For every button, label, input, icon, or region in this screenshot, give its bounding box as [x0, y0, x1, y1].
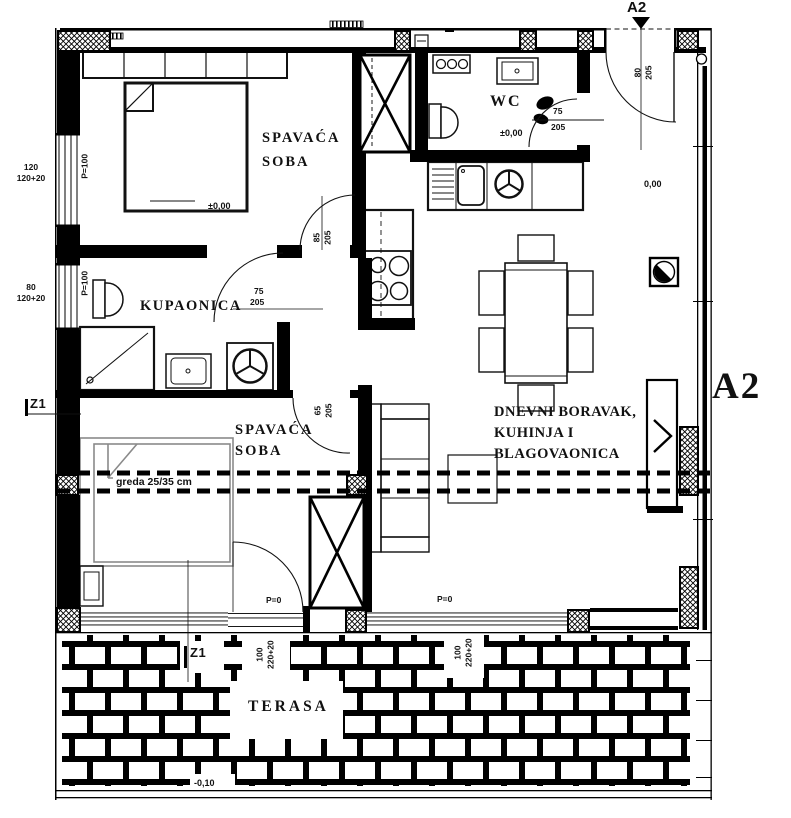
- bathroom-label: KUPAONICA: [140, 299, 242, 314]
- facade-detail: [697, 54, 707, 64]
- window-width: 120: [12, 162, 50, 173]
- level-mark: ±0,00: [500, 129, 522, 138]
- level-mark: 0,00: [644, 180, 662, 189]
- bedroom1-label: SPAVAĆA: [262, 131, 340, 146]
- terrace-paving: [62, 632, 698, 799]
- window-height: 220+20: [463, 631, 474, 675]
- coffee-table-icon: [448, 455, 497, 503]
- level-mark: -0,10: [194, 779, 215, 788]
- door-width: 65: [312, 391, 323, 431]
- vent-grille-icon: [330, 21, 363, 28]
- window-width: 100: [452, 631, 463, 675]
- washing-machine-icon: [227, 343, 273, 390]
- living-room-label: DNEVNI BORAVAK,: [494, 405, 636, 420]
- parapet-label: P=100: [80, 143, 91, 189]
- door-height: 205: [322, 218, 333, 258]
- window2-dim: 80 120+20: [12, 282, 50, 303]
- door-height: 205: [643, 53, 654, 93]
- dining-table-icon: [479, 235, 593, 411]
- entry-door-dim: 80 205: [632, 53, 653, 93]
- drain-symbol-icon: [650, 258, 678, 286]
- wc-door-height: 205: [551, 122, 565, 133]
- nightstand-icon: [80, 566, 103, 606]
- terrace-label: TERASA: [248, 699, 329, 715]
- section-marker-triangle: [632, 17, 650, 29]
- door-width: 100: [254, 633, 265, 677]
- sofa-icon: [369, 404, 429, 552]
- living-room-label: KUHINJA I: [494, 426, 574, 441]
- wardrobe-icon: [83, 52, 287, 78]
- door-width: 80: [632, 53, 643, 93]
- z1-tick: [25, 399, 28, 416]
- bed2-icon: [80, 438, 233, 566]
- floor-plan-drawing: [0, 0, 791, 818]
- level-mark: ±0,00: [208, 202, 230, 211]
- section-marker-label: A2: [627, 0, 646, 15]
- bedroom2-door-dim: 65 205: [312, 391, 333, 431]
- door-height: 205: [323, 391, 334, 431]
- plan-title: A2: [712, 368, 761, 405]
- door-height: 220+20: [265, 633, 276, 677]
- z1-marker: Z1: [30, 397, 46, 410]
- parapet-label: P=100: [80, 260, 91, 306]
- wc-label: WC: [490, 94, 522, 110]
- parapet-label: P=0: [266, 595, 281, 606]
- beam-annotation: greda 25/35 cm: [113, 477, 195, 488]
- balcony-door-dim: 100 220+20: [254, 633, 275, 677]
- window-width: 80: [12, 282, 50, 293]
- z1-marker: Z1: [190, 646, 206, 659]
- wc-toilet-icon: [429, 104, 458, 138]
- bathroom-door-height: 205: [250, 297, 264, 308]
- shower-icon: [80, 327, 154, 390]
- door-width: 85: [311, 218, 322, 258]
- floor-plan-page: SPAVAĆA SOBA ±0,00 WC ±0,00 75 205 KUPAO…: [0, 0, 791, 818]
- wc-sink-icon: [497, 58, 538, 84]
- window1-dim: 120 120+20: [12, 162, 50, 183]
- window-height: 120+20: [12, 173, 50, 184]
- bedroom2-label: SOBA: [235, 444, 283, 459]
- z1-tick: [184, 646, 187, 668]
- living-room-label: BLAGOVAONICA: [494, 447, 620, 462]
- bedroom1-label: SOBA: [262, 155, 310, 170]
- shaft-x-icon: [360, 55, 410, 152]
- wc-door-width: 75: [553, 106, 562, 117]
- bathroom-sink-icon: [166, 354, 211, 388]
- bedroom1-door-dim: 85 205: [311, 218, 332, 258]
- bed-icon: [125, 83, 247, 211]
- bathroom-toilet-icon: [93, 280, 123, 318]
- parapet-label: P=0: [437, 594, 452, 605]
- window-height: 120+20: [12, 293, 50, 304]
- shaft-x-icon: [310, 497, 364, 608]
- bedroom2-label: SPAVAĆA: [235, 423, 313, 438]
- bathroom-door-width: 75: [254, 286, 263, 297]
- living-window-dim: 100 220+20: [452, 631, 473, 675]
